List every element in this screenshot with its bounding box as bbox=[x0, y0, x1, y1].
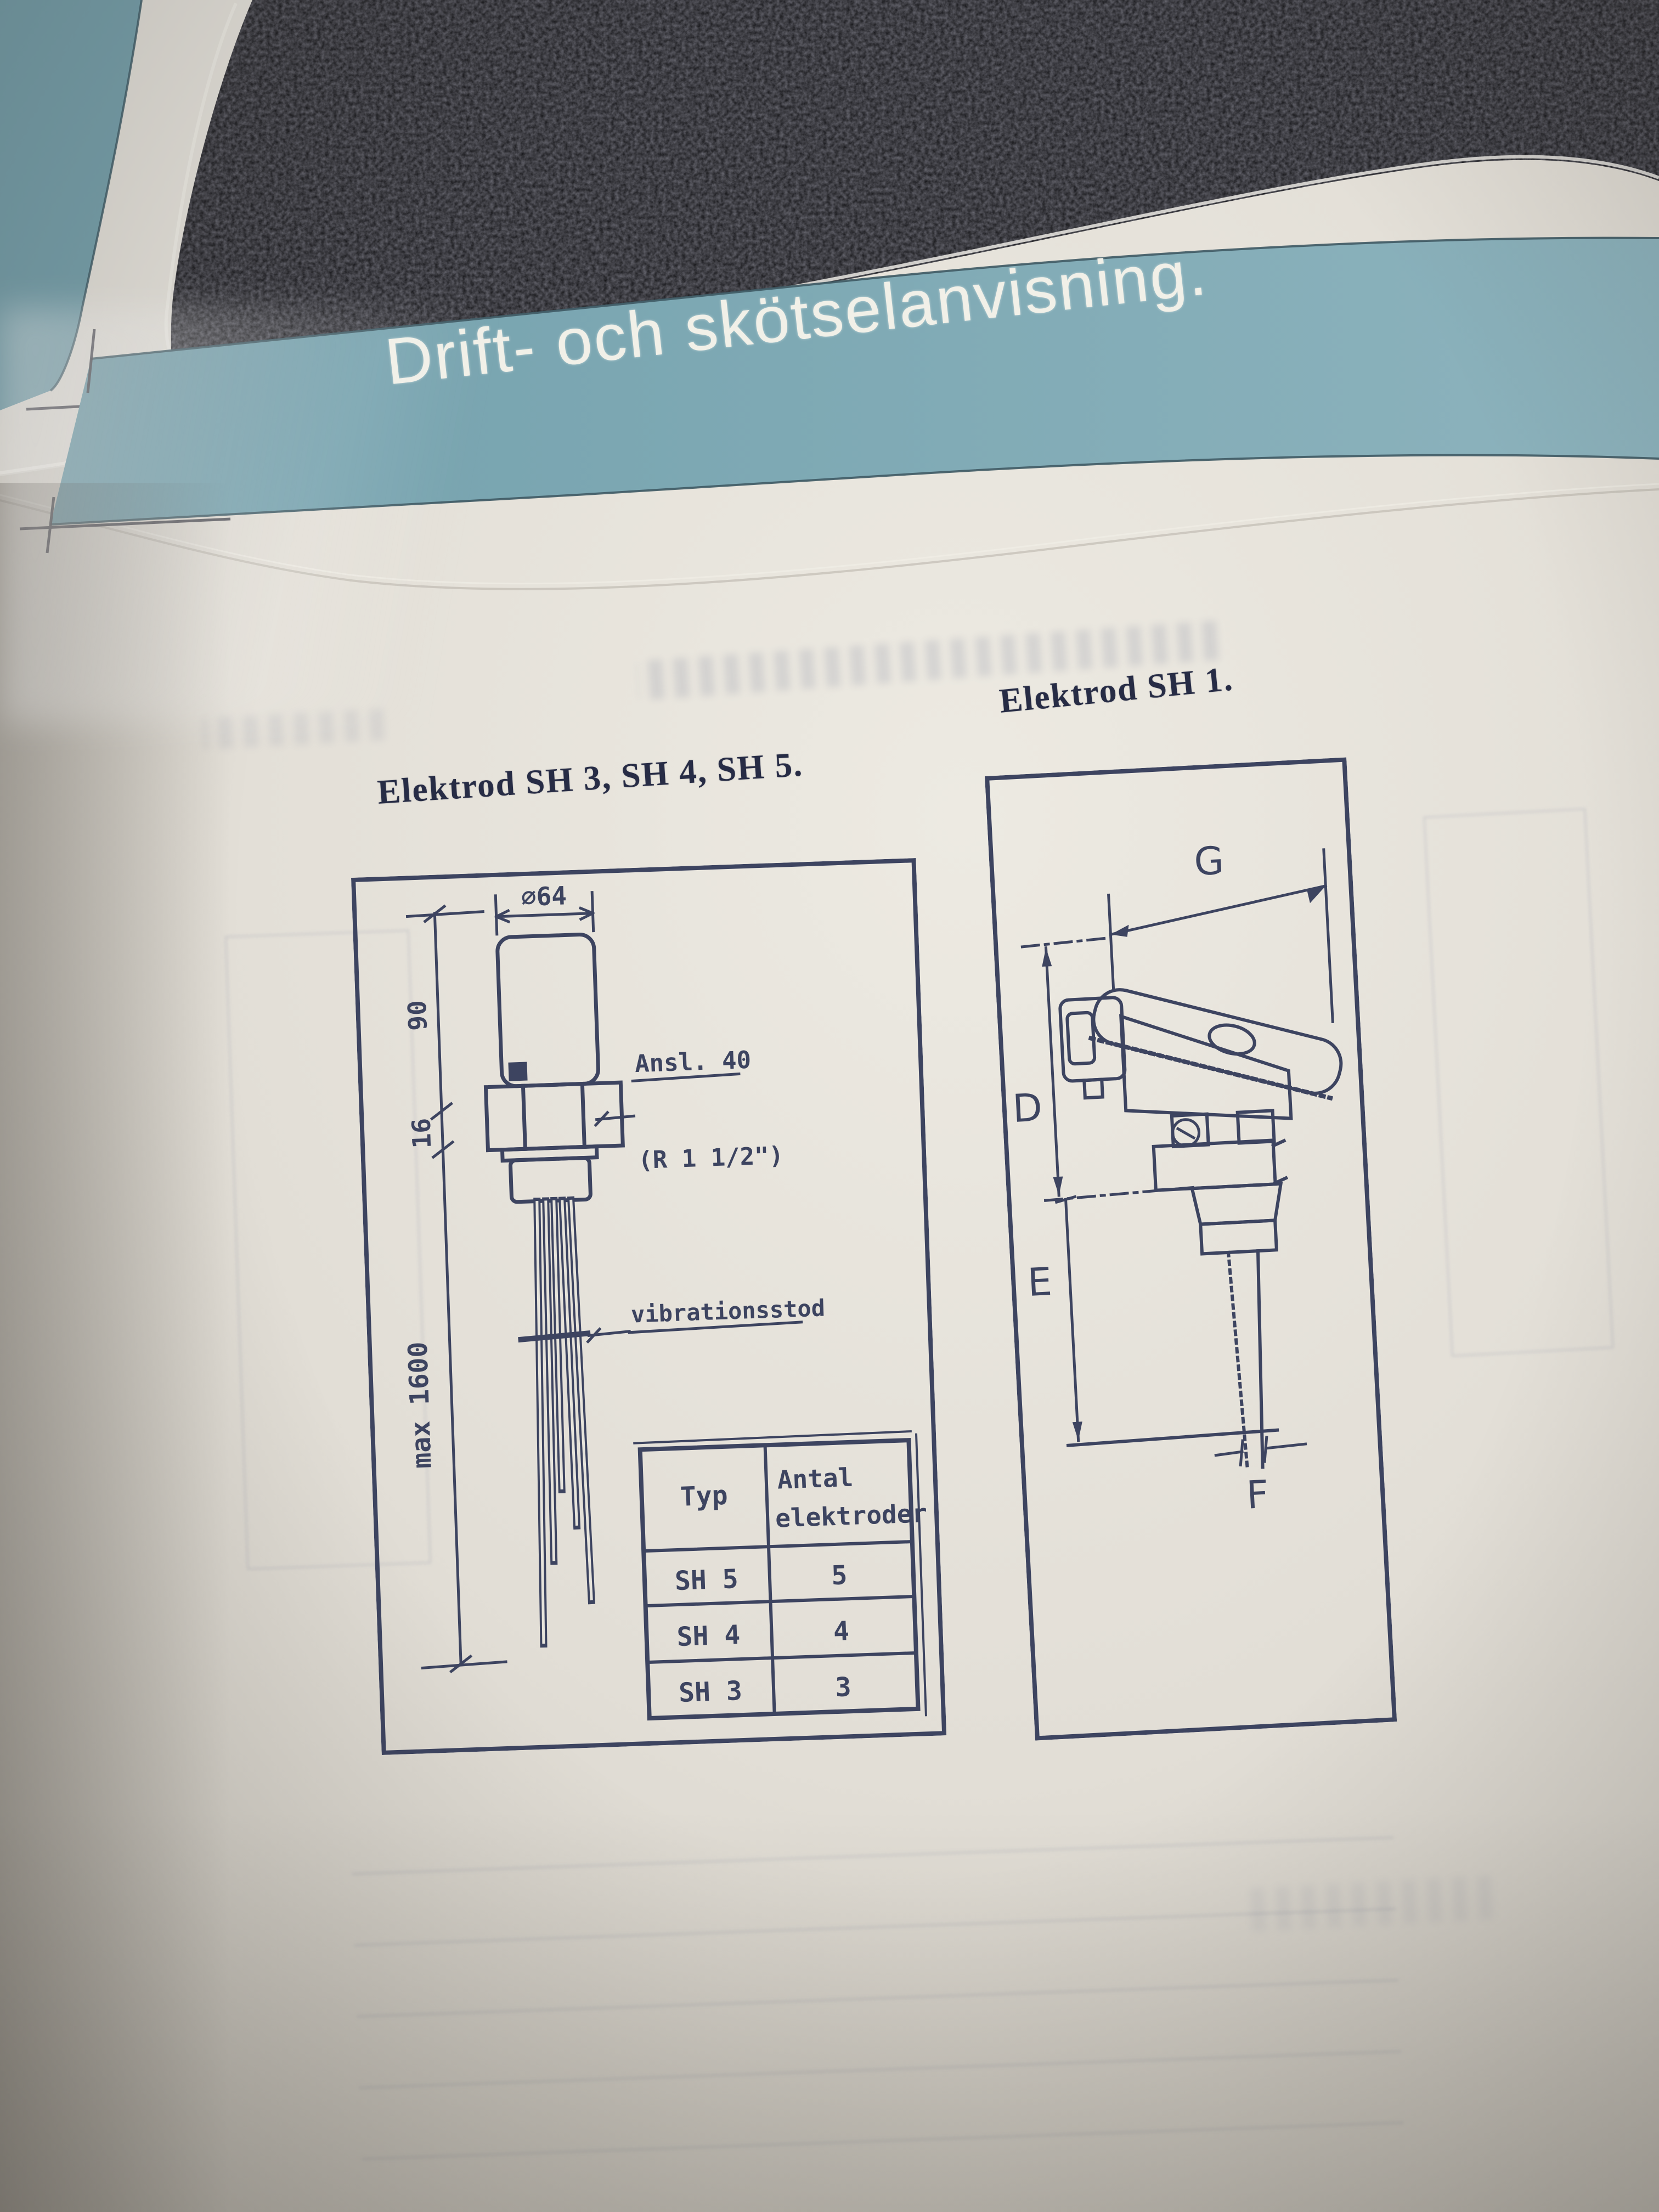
photo-vignette bbox=[0, 0, 1659, 2212]
photo-of-instruction-sheet: Drift- och skötselanvisning. Elektrod SH… bbox=[0, 0, 1659, 2212]
